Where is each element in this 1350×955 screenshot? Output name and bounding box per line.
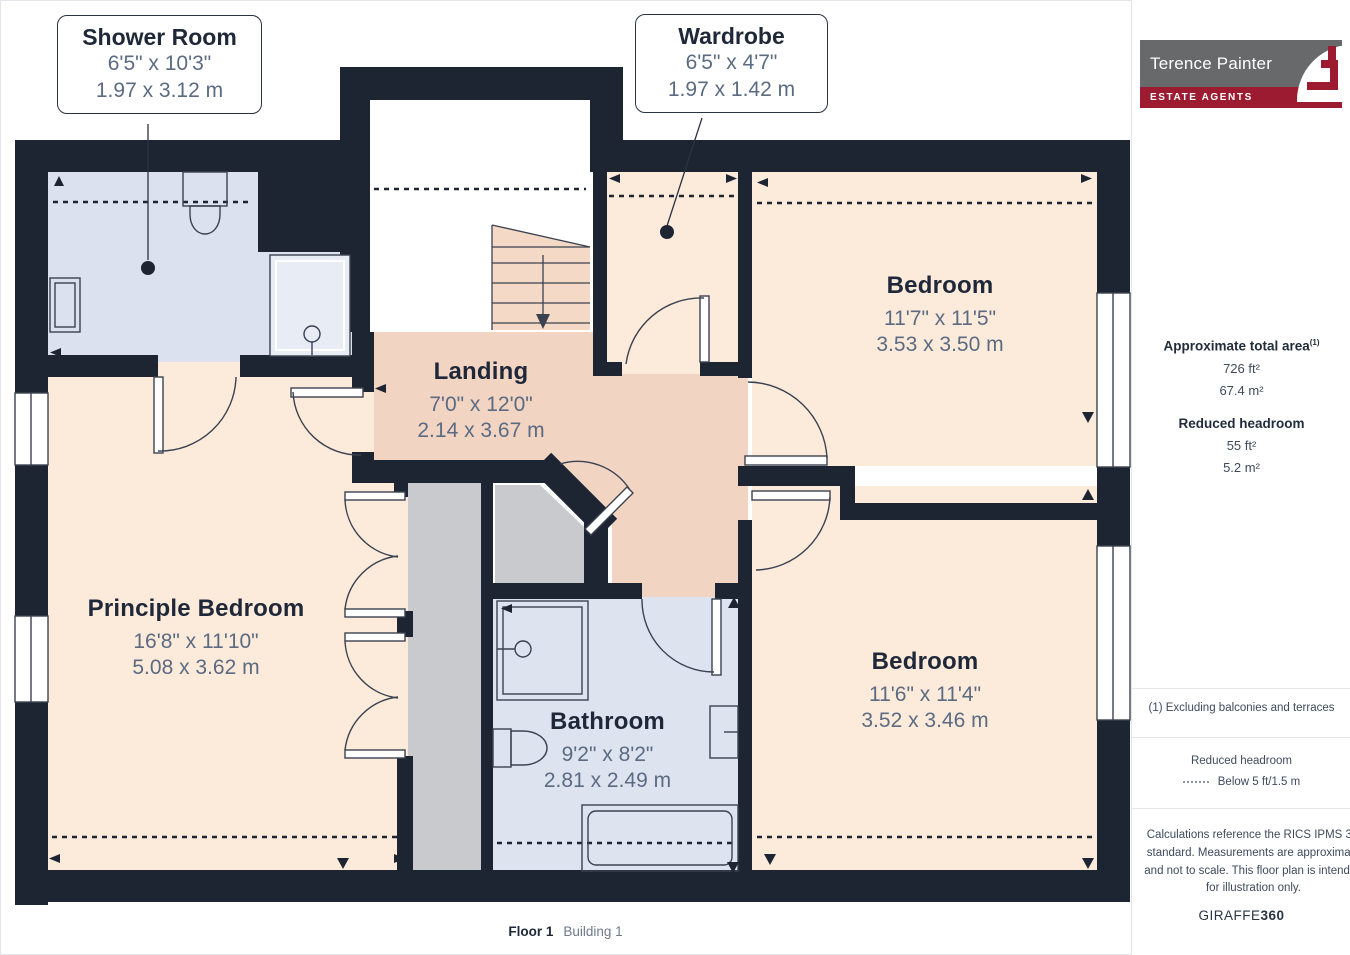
ceiling-light-icon bbox=[141, 261, 155, 275]
floor-caption: Floor 1Building 1 bbox=[0, 924, 1131, 939]
floorplan-canvas: Shower Room 6'5" x 10'3" 1.97 x 3.12 m W… bbox=[0, 0, 1131, 955]
closet-door-leaf bbox=[345, 633, 405, 641]
total-area-imperial: 726 ft² bbox=[1132, 361, 1350, 376]
reduced-headroom-title: Reduced headroom bbox=[1132, 416, 1350, 431]
disclaimer-text: Calculations reference the RICS IPMS 3C … bbox=[1132, 827, 1350, 898]
room-dim-metric: 1.97 x 3.12 m bbox=[68, 78, 251, 105]
legend-label: Below 5 ft/1.5 m bbox=[1218, 776, 1300, 788]
floorplan-page: Shower Room 6'5" x 10'3" 1.97 x 3.12 m W… bbox=[0, 0, 1350, 955]
bedroom-top-floor bbox=[752, 172, 1097, 466]
room-dim-imperial: 6'5" x 4'7" bbox=[646, 50, 817, 77]
bathroom-floor bbox=[493, 597, 740, 875]
closet-door-leaf bbox=[345, 492, 405, 500]
logo-tagline-text: ESTATE AGENTS bbox=[1140, 92, 1253, 103]
bedroom-bottom-floor bbox=[752, 486, 1097, 875]
total-area-metric: 67.4 m² bbox=[1132, 383, 1350, 398]
credit-suffix: 360 bbox=[1260, 908, 1284, 923]
door-leaf bbox=[752, 491, 830, 500]
door-leaf bbox=[291, 388, 363, 397]
sidebar-divider bbox=[1132, 737, 1350, 738]
logo-brand-text: Terence Painter bbox=[1140, 54, 1272, 74]
sidebar-divider bbox=[1132, 808, 1350, 809]
reduced-headroom-metric: 5.2 m² bbox=[1132, 460, 1350, 475]
sidebar-divider bbox=[1132, 688, 1350, 689]
shower-drain-icon bbox=[515, 641, 531, 657]
giraffe360-credit: GIRAFFE360 bbox=[1132, 908, 1350, 923]
floorplan-drawing bbox=[0, 0, 1131, 955]
total-area-title: Approximate total area(1) bbox=[1132, 338, 1350, 354]
door-leaf bbox=[745, 456, 827, 465]
closet-door-leaf bbox=[345, 750, 405, 758]
principle-bedroom-floor bbox=[48, 362, 408, 875]
callout-shower-room: Shower Room 6'5" x 10'3" 1.97 x 3.12 m bbox=[57, 15, 262, 114]
floor-label: Floor 1 bbox=[508, 924, 553, 939]
closet-floor bbox=[408, 483, 481, 875]
total-area-block: Approximate total area(1) 726 ft² 67.4 m… bbox=[1132, 338, 1350, 475]
area-footnote: (1) Excluding balconies and terraces bbox=[1132, 702, 1350, 714]
footnote-marker: (1) bbox=[1310, 338, 1320, 347]
logo-brand-bar: Terence Painter bbox=[1140, 40, 1297, 87]
closet-door-leaf bbox=[345, 609, 405, 617]
room-name: Shower Room bbox=[68, 24, 251, 51]
legend-title: Reduced headroom bbox=[1132, 755, 1350, 767]
ceiling-light-icon bbox=[660, 225, 674, 239]
door-leaf bbox=[700, 296, 709, 362]
callout-wardrobe: Wardrobe 6'5" x 4'7" 1.97 x 1.42 m bbox=[635, 14, 828, 113]
terence-painter-logo: Terence Painter ESTATE AGENTS bbox=[1140, 40, 1342, 108]
reduced-headroom-imperial: 55 ft² bbox=[1132, 438, 1350, 453]
credit-brand: GIRAFFE bbox=[1198, 908, 1260, 923]
room-dim-imperial: 6'5" x 10'3" bbox=[68, 51, 251, 78]
dashed-line-legend-icon bbox=[1183, 781, 1209, 783]
building-label: Building 1 bbox=[563, 924, 622, 939]
room-dim-metric: 1.97 x 1.42 m bbox=[646, 77, 817, 104]
door-leaf bbox=[712, 599, 721, 675]
house-icon bbox=[1297, 40, 1342, 108]
door-leaf bbox=[154, 377, 163, 453]
room-name: Wardrobe bbox=[646, 23, 817, 50]
legend-row: Below 5 ft/1.5 m bbox=[1132, 776, 1350, 788]
logo-tagline-bar: ESTATE AGENTS bbox=[1140, 87, 1297, 108]
shower-cubicle-icon bbox=[270, 255, 350, 356]
wardrobe-floor bbox=[605, 172, 740, 374]
info-sidebar: Terence Painter ESTATE AGENTS Approximat… bbox=[1131, 0, 1350, 955]
